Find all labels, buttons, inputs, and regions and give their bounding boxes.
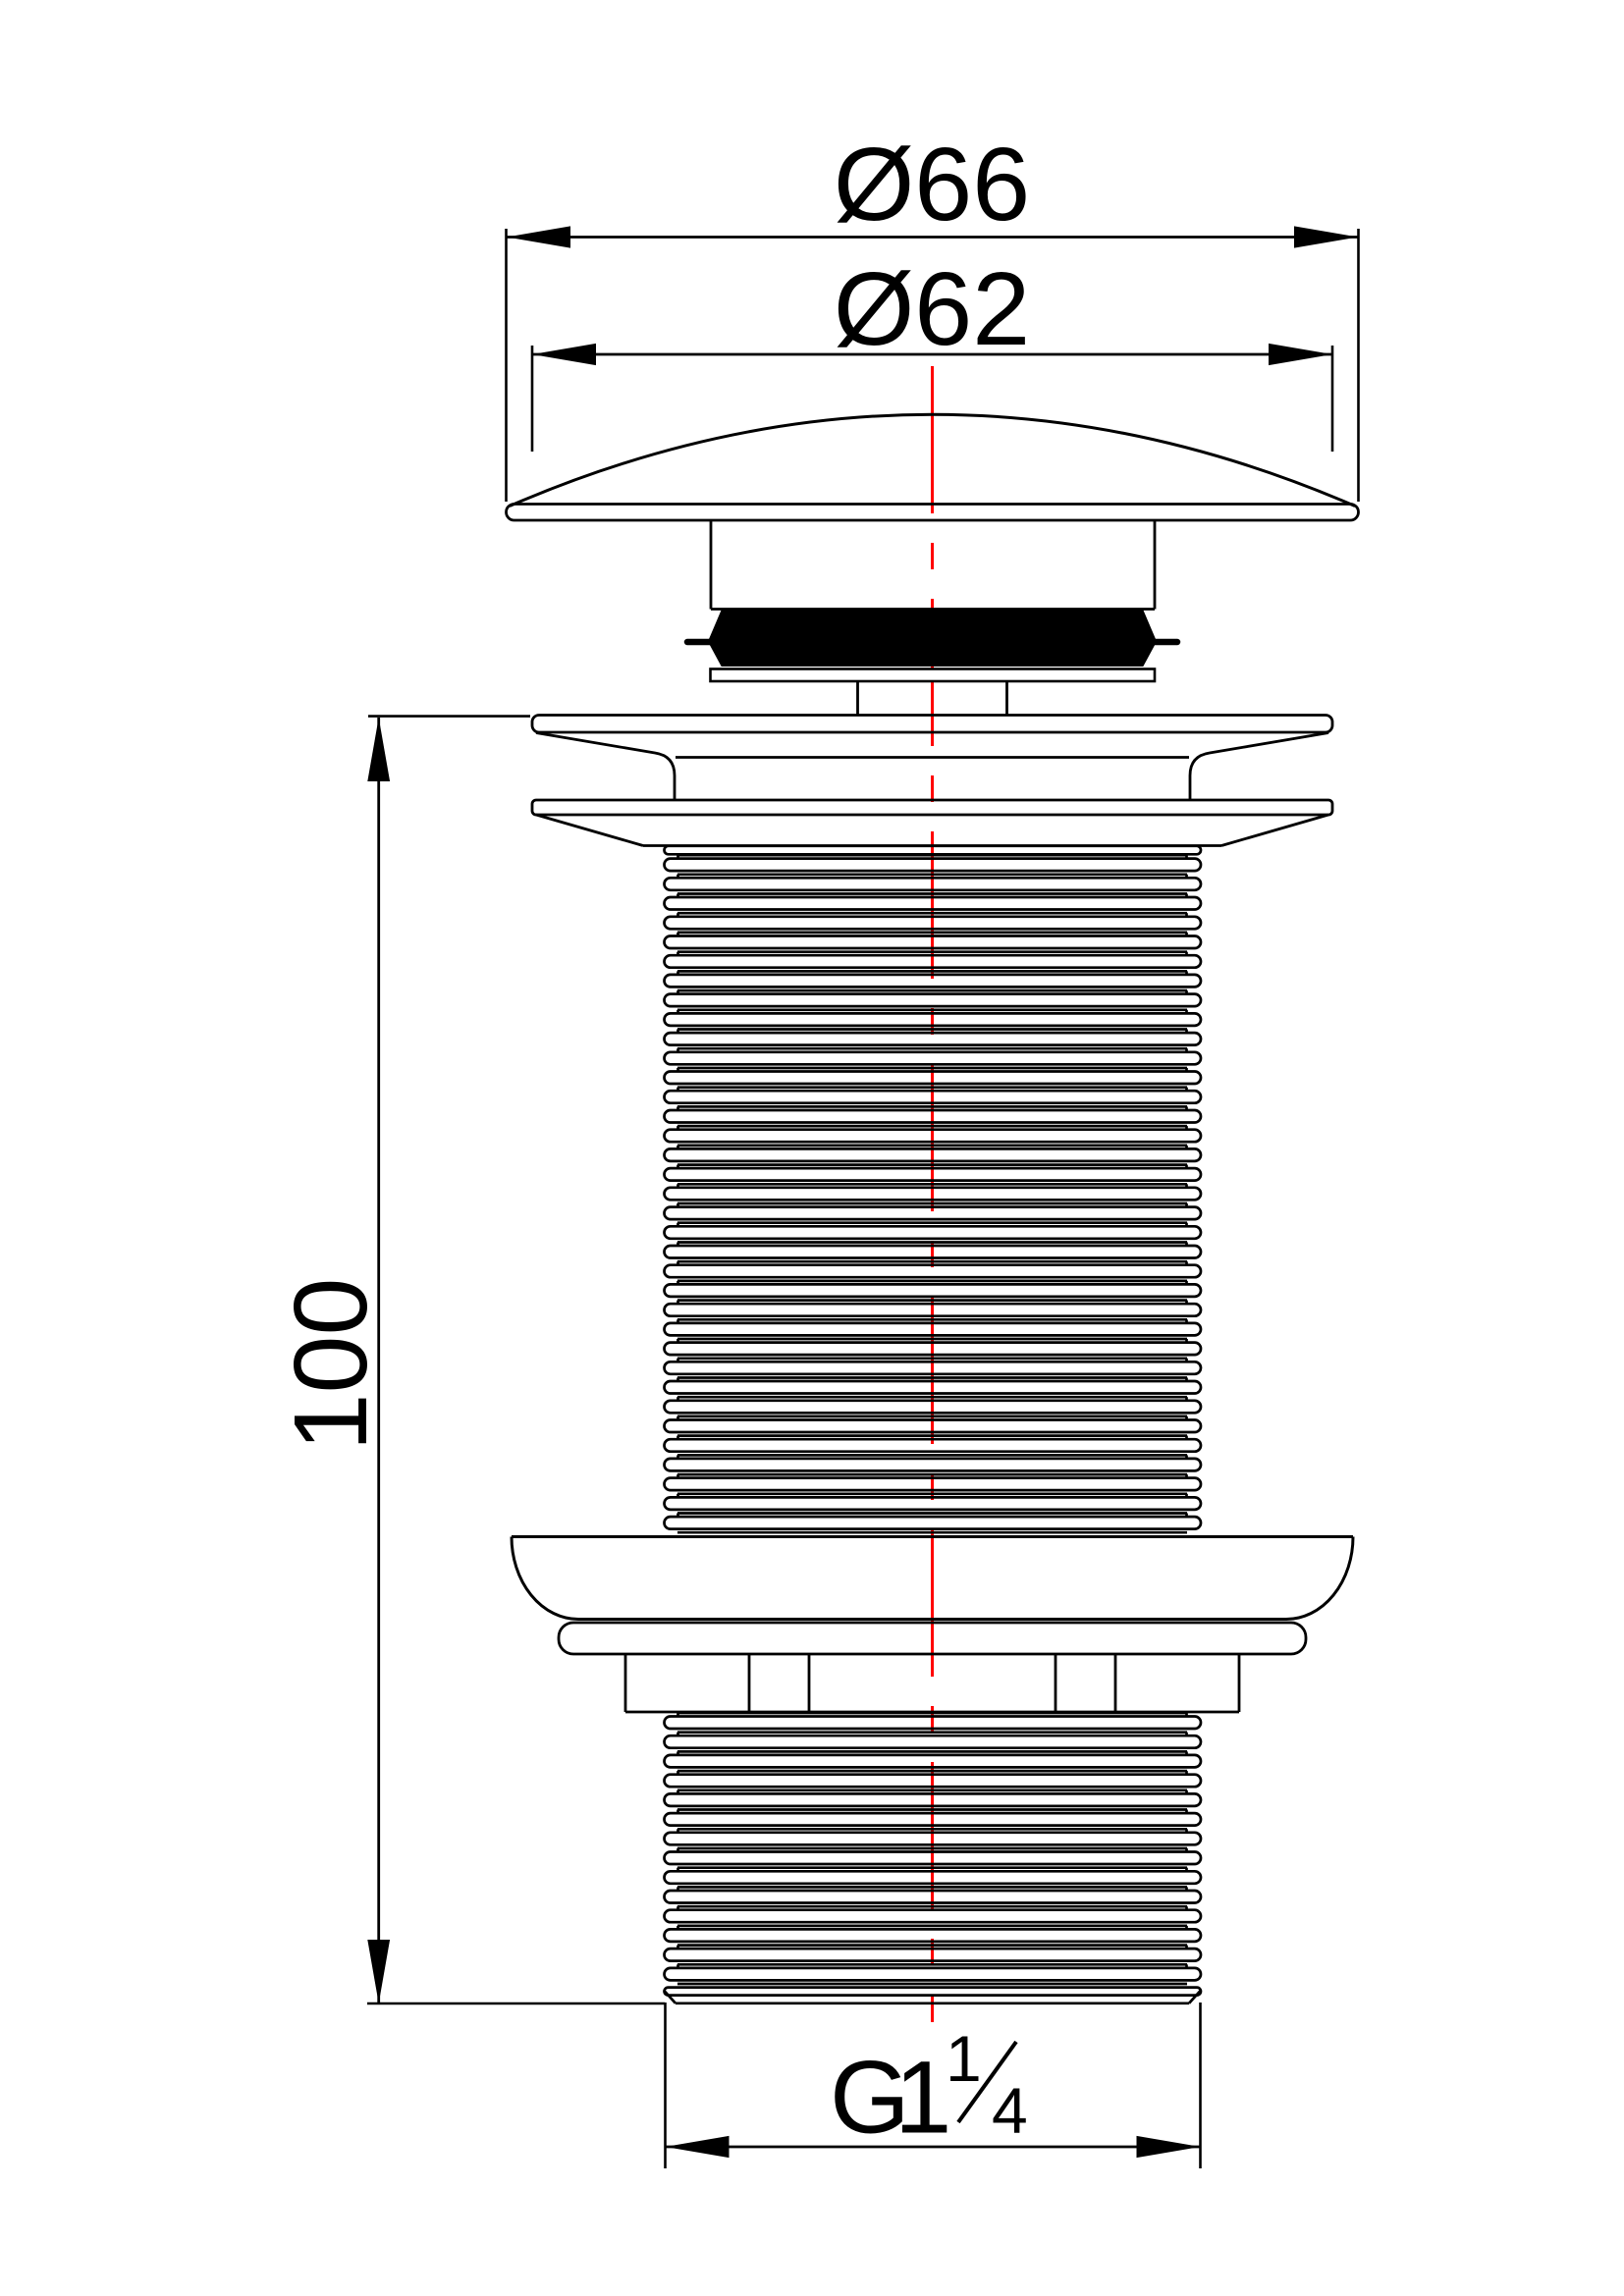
svg-text:1: 1 <box>894 2041 951 2156</box>
svg-text:Ø62: Ø62 <box>834 251 1030 367</box>
svg-text:100: 100 <box>273 1278 389 1452</box>
svg-text:Ø66: Ø66 <box>834 127 1030 242</box>
svg-text:4: 4 <box>992 2074 1028 2147</box>
svg-text:1: 1 <box>946 2022 982 2095</box>
